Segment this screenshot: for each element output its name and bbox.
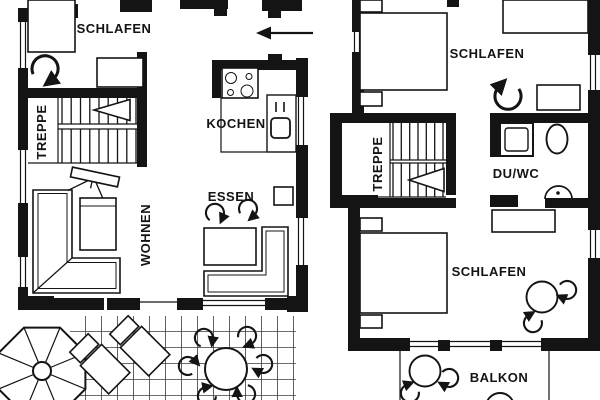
chair-icon: [442, 368, 460, 388]
balcony-table: [410, 356, 441, 387]
stairs-upper: [342, 123, 446, 197]
label-wohnen: WOHNEN: [138, 204, 153, 266]
dresser: [537, 85, 580, 110]
label-schlafen-upper-top: SCHLAFEN: [450, 46, 525, 61]
washbasin: [545, 186, 572, 199]
label-essen: ESSEN: [208, 189, 255, 204]
garden-table: [205, 348, 247, 390]
nightstand: [360, 218, 382, 231]
wardrobe: [503, 0, 588, 33]
double-bed: [360, 13, 447, 90]
double-bed: [360, 233, 447, 313]
door-swing-icon: [30, 53, 61, 80]
terrace: [0, 314, 296, 400]
balcony-table: [486, 393, 514, 400]
chair-icon: [398, 384, 421, 400]
label-balkon: BALKON: [470, 370, 529, 385]
nightstand: [360, 315, 382, 328]
nightstand: [360, 0, 382, 12]
chair-icon: [204, 202, 225, 221]
dining-table: [204, 228, 256, 265]
label-treppe-ground: TREPPE: [34, 104, 49, 159]
chair-icon: [521, 315, 543, 335]
sink: [271, 118, 290, 138]
room-wohnen: [33, 167, 120, 293]
label-schlafen-ground: SCHLAFEN: [77, 21, 152, 36]
bed: [28, 0, 75, 52]
room-schlafen-ground: [28, 0, 143, 87]
door-swing-icon: [494, 87, 522, 110]
label-kochen: KOCHEN: [206, 116, 265, 131]
wardrobe: [97, 58, 143, 87]
room-kochen: [221, 68, 296, 152]
nightstand: [360, 92, 382, 106]
table: [527, 282, 558, 313]
wardrobe: [492, 210, 555, 232]
floor-plan-canvas: SCHLAFEN TREPPE KOCHEN ESSEN WOHNEN SCHL…: [0, 0, 600, 400]
tv-icon: [68, 167, 120, 200]
label-schlafen-upper-bottom: SCHLAFEN: [452, 264, 527, 279]
room-du-wc: [500, 123, 572, 199]
entrance-arrow-icon: [256, 27, 313, 40]
label-treppe-upper: TREPPE: [370, 136, 385, 191]
toilet: [547, 125, 568, 154]
floor-plan: SCHLAFEN TREPPE KOCHEN ESSEN WOHNEN SCHL…: [0, 0, 600, 400]
label-du-wc: DU/WC: [493, 166, 540, 181]
chair-icon: [559, 279, 578, 300]
sideboard: [274, 187, 293, 205]
